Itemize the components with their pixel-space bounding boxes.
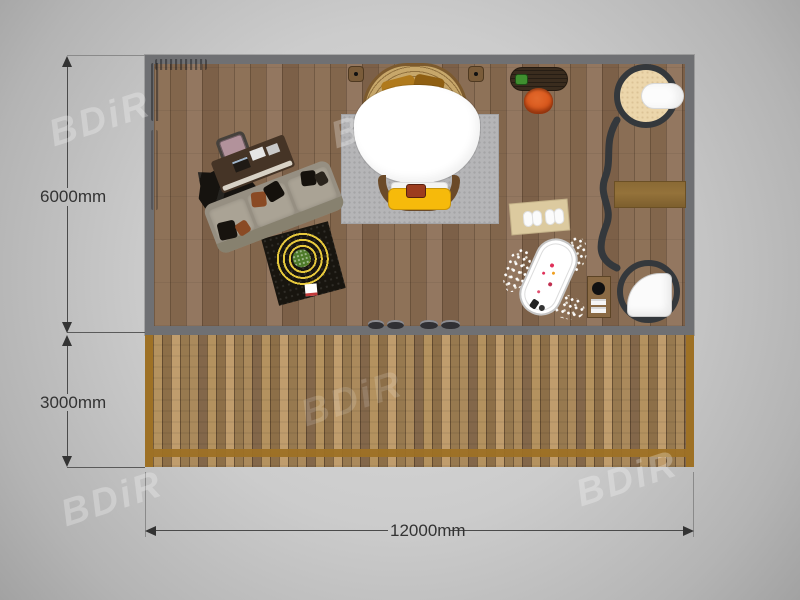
slipper: [524, 212, 533, 227]
threshold-slipper: [387, 320, 404, 329]
wall-texture-left-upper: [151, 63, 160, 121]
sconce-dot: [474, 72, 478, 76]
wall-sconce-left: [349, 67, 363, 81]
ext-line-mid: [67, 332, 145, 333]
bench-tray: [407, 185, 425, 197]
dim-arrow-down-mid: [62, 322, 72, 333]
caddy-towel: [591, 299, 606, 305]
caddy-towel: [591, 307, 606, 313]
dim-arrow-down-bottom: [62, 456, 72, 467]
console-item: [516, 75, 527, 84]
dim-line-12000-b: [450, 530, 683, 531]
dim-line-12000-a: [156, 530, 388, 531]
rug-card: [305, 283, 318, 296]
desk-paper: [249, 146, 266, 160]
dim-line-6000-a: [67, 58, 68, 188]
slipper: [533, 211, 542, 226]
wall-bench: [615, 182, 685, 207]
side-caddy: [588, 277, 610, 317]
dim-arrow-right: [683, 526, 694, 536]
desk-paper: [266, 143, 280, 156]
dim-label-6000: 6000mm: [40, 187, 106, 207]
dim-arrow-up-mid: [62, 335, 72, 346]
slipper: [545, 210, 554, 225]
dim-label-12000: 12000mm: [390, 521, 466, 541]
wall-texture-top: [155, 59, 207, 70]
bath-mat: [510, 200, 569, 235]
ext-line-bottom: [67, 467, 145, 468]
dim-line-6000-b: [67, 206, 68, 324]
floor-plan-canvas: 6000mm 3000mm 12000mm BDiR BDiR BDiR BDi…: [0, 0, 800, 600]
deck-floor: [145, 335, 694, 467]
ext-line-top: [67, 55, 145, 56]
watermark: BDiR: [44, 83, 157, 156]
slipper: [554, 209, 563, 224]
threshold-slipper: [420, 320, 438, 329]
wall-sconce-right: [469, 67, 483, 81]
laptop: [232, 157, 251, 173]
stool: [524, 88, 553, 114]
deck-bottom-rail: [153, 449, 686, 457]
dim-arrow-left: [145, 526, 156, 536]
sink: [642, 84, 683, 108]
sconce-dot: [354, 72, 358, 76]
round-bed-duvet: [354, 85, 480, 183]
threshold-slipper: [441, 320, 460, 329]
console-table: [511, 68, 567, 90]
threshold-slipper: [368, 320, 384, 329]
dim-arrow-up-top: [62, 56, 72, 67]
dim-label-3000: 3000mm: [40, 393, 106, 413]
caddy-bowl: [592, 282, 605, 295]
dim-line-3000-b: [67, 411, 68, 458]
wall-texture-left-lower: [151, 130, 158, 210]
